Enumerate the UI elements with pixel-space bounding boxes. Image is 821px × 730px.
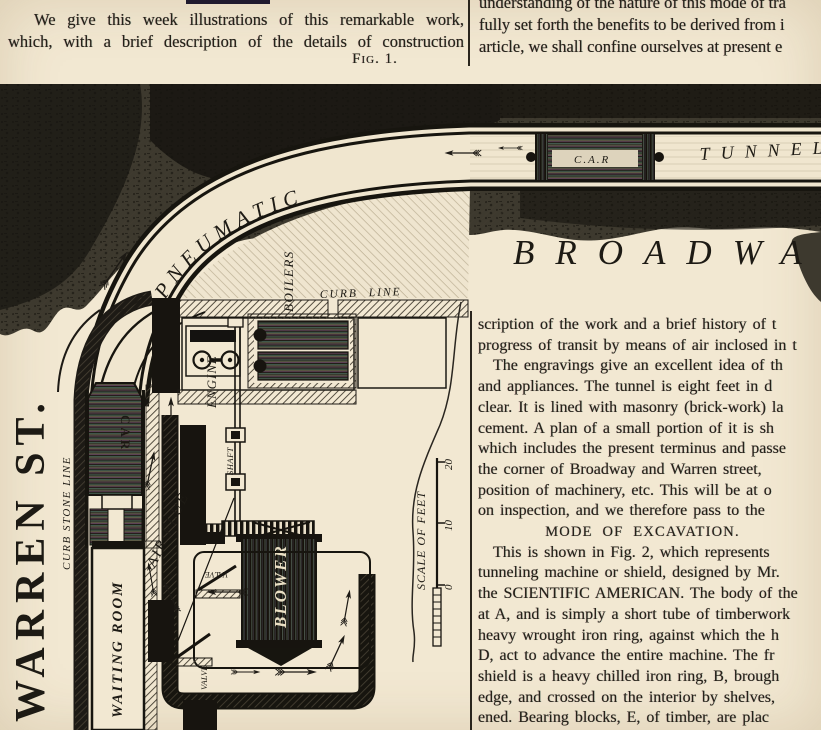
label-valve-upper: VALVE [205,570,228,579]
intro-right-column: understanding of the nature of this mode… [479,0,821,70]
article-line: on inspection, and we therefore pass to … [478,501,821,522]
label-station-car: CAR [118,415,133,452]
scale-tick-10: 10 [443,520,455,532]
intro-left-line-1: We give this week illustrations of this … [8,9,464,31]
station-car: CAR [88,383,142,545]
intro-left-line-2: which, with a brief description of the d… [8,31,464,53]
article-line: tunneling machine or shield, designed by… [478,563,821,584]
article-line: and appliances. The tunnel is eight feet… [478,377,821,398]
label-blower: BLOWER [271,544,290,629]
label-broadway: BROADWAY [513,233,821,272]
label-curb-line: CURB LINE [320,286,402,301]
waiting-room: WAITING ROOM [92,541,157,730]
intro-left-column: We give this week illustrations of this … [8,9,464,53]
article-line: at A, and is simply a short tube of timb… [478,605,821,626]
label-curb-stone-line: CURB STONE LINE [61,456,73,570]
article-line: heavy wrought iron ring, against which t… [478,626,821,647]
label-shaft: SHAFT [225,446,235,475]
article-line: progress of transit by means of air incl… [478,336,821,357]
intro-right-line-3: article, we shall confine ourselves at p… [479,36,821,58]
intro-right-line-2: fully set forth the benefits to be deriv… [479,14,821,36]
article-line: which includes the present terminus and … [478,439,821,460]
scanned-page: C.A.R PNEUMATIC TUNNEL BROADWAY WARREN S… [0,0,821,730]
article-line: scription of the work and a brief histor… [478,315,821,336]
label-warren-st: WARREN ST. [8,396,54,722]
article-line: This is shown in Fig. 2, which represent… [478,543,821,564]
article-line: ened. Bearing blocks, E, of timber, are … [478,708,821,729]
article-line: clear. It is lined with masonry (brick-w… [478,398,821,419]
article-line: position of machinery, etc. This will be… [478,481,821,502]
tunnel-car: C.A.R [526,134,664,180]
article-line: cement. A plan of a small portion of it … [478,419,821,440]
article-line: edge, and crossed on the interior by she… [478,688,821,709]
article-column: scription of the work and a brief histor… [478,315,821,730]
label-waiting-room: WAITING ROOM [110,581,126,719]
article-line: shield is a heavy chilled iron ring, B, … [478,667,821,688]
label-scale-of-feet: SCALE OF FEET [414,491,428,590]
figure-1-caption: Fig. 1. [310,51,440,68]
scale-of-feet: 20 10 0 SCALE OF FEET [414,458,455,646]
intro-right-line-1: understanding of the nature of this mode… [479,0,821,14]
article-line: the corner of Broadway and Warren street… [478,460,821,481]
article-line: the SCIENTIFIC AMERICAN. The body of the [478,584,821,605]
label-valve-lower: VALVE [199,665,209,690]
scale-tick-0: 0 [443,584,455,590]
article-line: D, act to advance the entire machine. Th… [478,646,821,667]
label-boilers: BOILERS [281,250,296,312]
article-line: The engravings give an excellent idea of… [478,356,821,377]
label-tunnel-car: C.A.R [574,154,610,166]
article-subheading: MODE OF EXCAVATION. [478,522,821,543]
scale-tick-20: 20 [443,459,455,471]
